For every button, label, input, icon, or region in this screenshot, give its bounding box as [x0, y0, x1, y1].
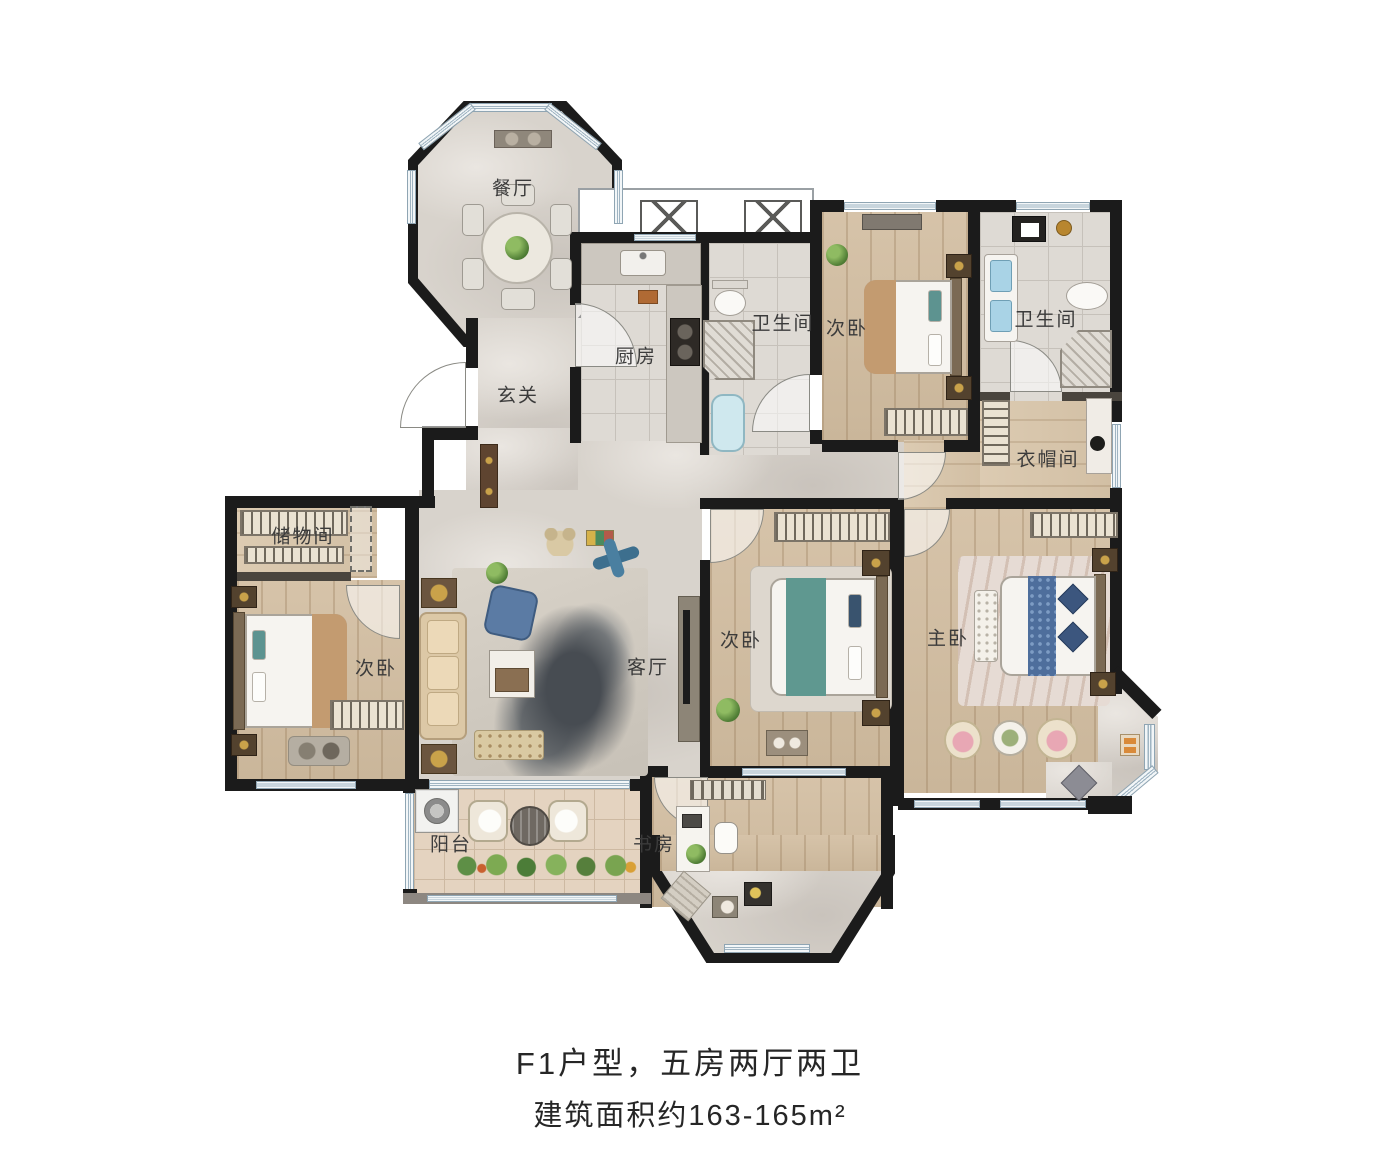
bath1-toilet-tank [712, 280, 748, 289]
bedroom2-headboard [233, 612, 245, 730]
dining-chair [501, 288, 535, 310]
master-lounge-chair [1036, 718, 1078, 760]
bedroom3-pillow [848, 646, 862, 680]
bath2-round-basin [1056, 220, 1072, 236]
dining-chair [462, 258, 484, 290]
wall [403, 779, 415, 793]
bath1-label: 卫生间 [751, 309, 814, 336]
living-armchair [482, 584, 539, 643]
bedroom1-nightstand [946, 254, 972, 278]
closet-rack [982, 400, 1010, 466]
master-nightstand [1090, 672, 1116, 696]
wall [700, 498, 904, 509]
bath2-sink [990, 300, 1012, 332]
master-wardrobe [1030, 512, 1118, 538]
bedroom3-pillow [848, 594, 862, 628]
study-laptop [682, 814, 702, 828]
living-sofa-cushion [427, 692, 459, 726]
bath2-counter-appliance [1012, 216, 1046, 242]
living-side-table [421, 744, 457, 774]
study-bay-bottom-window [724, 944, 810, 953]
bedroom2-nightstand [231, 586, 257, 608]
bath1-bathtub [711, 394, 745, 452]
study-side-table [744, 882, 772, 906]
bedroom3-plant [716, 698, 740, 722]
bath1-toilet [714, 290, 746, 316]
dining-chair [462, 204, 484, 236]
wall [881, 777, 893, 909]
storage-label: 储物间 [271, 522, 334, 549]
master-bottom-window-1 [914, 800, 980, 808]
master-lounge-table [992, 720, 1028, 756]
dining-window-left [407, 170, 416, 224]
bedroom3-tea-table [766, 730, 808, 756]
kitchen-top-window [634, 234, 696, 241]
bedroom1-label: 次卧 [826, 314, 868, 341]
balcony-bottom-window [427, 895, 617, 902]
bedroom3-nightstand [862, 550, 890, 576]
washing-machine-drum [424, 798, 450, 824]
balcony-chair [548, 800, 588, 842]
bath2-sink [990, 260, 1012, 292]
living-sofa-cushion [427, 620, 459, 654]
wall [968, 200, 980, 440]
dining-window-top [470, 103, 552, 112]
bedroom1-plant [826, 244, 848, 266]
wall [810, 430, 822, 444]
closet-stool [1090, 436, 1105, 451]
storage-folding-door [350, 506, 372, 572]
balcony-chair [468, 800, 508, 842]
entry-door [400, 362, 466, 428]
dining-sideboard [494, 130, 552, 148]
kitchen-label: 厨房 [615, 342, 657, 369]
wall [944, 440, 980, 452]
wall [822, 440, 898, 452]
bedroom3-nightstand [862, 700, 890, 726]
wall [810, 200, 822, 375]
living-label: 客厅 [627, 653, 669, 680]
master-bench [974, 590, 998, 662]
balcony-sliding-window [429, 780, 630, 789]
wall [822, 200, 844, 212]
wall [1088, 796, 1132, 814]
tv-screen [683, 610, 690, 704]
bedroom2-pillow [252, 672, 266, 702]
study-bookshelf [690, 780, 766, 800]
balcony-planter [452, 854, 638, 878]
plan-title: F1户型，五房两厅两卫 [516, 1038, 864, 1083]
bedroom3-blanket [786, 578, 826, 696]
plan-area: 建筑面积约163-165m² [533, 1092, 846, 1134]
study-plant [686, 844, 706, 864]
bedroom1-wardrobe [884, 408, 968, 436]
entry-console [480, 444, 498, 508]
wall [700, 560, 710, 769]
bath2-top-window [1016, 202, 1090, 210]
master-bottom-window-2 [1000, 800, 1086, 808]
ac-unit-box-2 [744, 200, 802, 234]
living-sofa-cushion [427, 656, 459, 690]
toy-bear [544, 528, 576, 556]
living-table-shelf [495, 668, 529, 692]
closet-right-window [1112, 424, 1121, 488]
master-label: 主卧 [927, 624, 969, 651]
wall [890, 509, 904, 769]
floor-plan: 餐厅 玄关 厨房 卫生间 次卧 卫生间 衣帽间 储物间 次卧 客厅 次卧 主卧 … [0, 0, 1400, 1176]
master-bay-window [1144, 724, 1155, 770]
entry-label: 玄关 [497, 381, 539, 408]
bedroom2-label: 次卧 [355, 654, 397, 681]
bedroom1-top-window [844, 202, 936, 210]
bedroom2-nightstand [231, 734, 257, 756]
master-lounge-chair [944, 720, 982, 760]
living-side-table [421, 578, 457, 608]
bedroom3-label: 次卧 [720, 626, 762, 653]
dining-chair [550, 204, 572, 236]
kitchen-cutting-board [638, 290, 658, 304]
wall [225, 496, 435, 508]
study-chair [714, 822, 738, 854]
wall [570, 367, 581, 443]
wall-storage-divider [237, 572, 351, 581]
bedroom2-pillow [252, 630, 266, 660]
bedroom3-bottom-window [742, 768, 846, 776]
closet-label: 衣帽间 [1016, 445, 1079, 472]
study-tea-table [712, 896, 738, 918]
bedroom2-bottom-window [256, 781, 356, 789]
bedroom3-headboard [876, 576, 888, 698]
wall [630, 779, 642, 791]
wall [946, 498, 1122, 509]
living-plant [486, 562, 508, 584]
bath1-shower [703, 320, 755, 380]
dining-window-right [614, 170, 623, 224]
wall [652, 766, 668, 777]
ac-unit-box-1 [640, 200, 698, 234]
dining-label: 餐厅 [492, 174, 534, 201]
bedroom1-pillow [928, 290, 942, 322]
bath2-label: 卫生间 [1014, 305, 1077, 332]
wall [1110, 200, 1122, 422]
bedroom3-wardrobe [774, 512, 890, 542]
master-nightstand [1092, 548, 1118, 572]
wall [980, 200, 1016, 212]
bedroom1-shelf [862, 214, 922, 230]
master-bay-cabinet [1120, 734, 1140, 756]
master-bed-runner [1028, 576, 1056, 676]
balcony-side-window [405, 793, 414, 891]
living-bench [474, 730, 544, 760]
balcony-label: 阳台 [430, 830, 472, 857]
bedroom2-rug [288, 736, 350, 766]
study-label: 书房 [633, 830, 675, 857]
bedroom1-nightstand [946, 376, 972, 400]
balcony-table [510, 806, 550, 846]
bedroom1-pillow [928, 334, 942, 366]
bedroom1-blanket [864, 280, 896, 374]
wall [405, 496, 419, 791]
bedroom2-wardrobe [330, 700, 404, 730]
dining-chair [550, 258, 572, 290]
kitchen-sink [620, 250, 666, 276]
kitchen-stove [670, 318, 700, 366]
wall [466, 318, 478, 368]
dining-centerpiece [505, 236, 529, 260]
storage-shelf [244, 546, 344, 564]
